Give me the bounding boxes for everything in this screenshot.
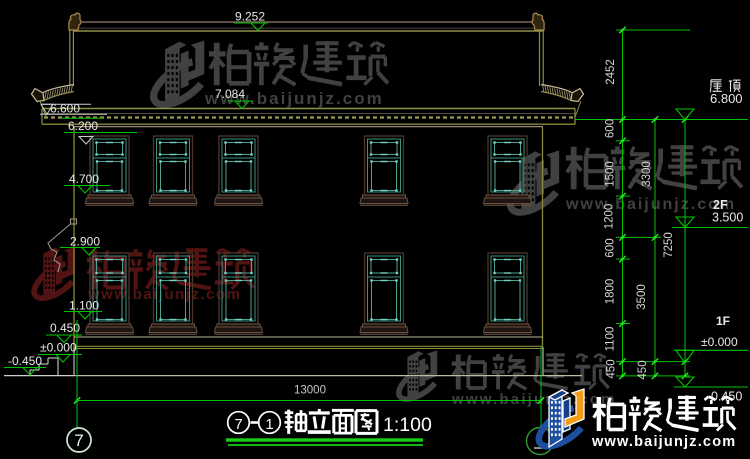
svg-text:2452: 2452 xyxy=(605,59,617,85)
svg-text:3500: 3500 xyxy=(636,284,648,310)
svg-text:1500: 1500 xyxy=(605,161,617,187)
svg-text:600: 600 xyxy=(605,119,617,138)
svg-text:6.800: 6.800 xyxy=(710,91,743,106)
svg-text:7250: 7250 xyxy=(663,232,675,258)
svg-text:13000: 13000 xyxy=(294,385,326,397)
svg-text:6.600: 6.600 xyxy=(50,102,80,116)
svg-text:1.100: 1.100 xyxy=(69,299,99,313)
svg-text:3300: 3300 xyxy=(641,161,653,187)
svg-text:6.200: 6.200 xyxy=(68,119,98,133)
svg-text:4.700: 4.700 xyxy=(69,172,99,186)
svg-text:www.baijunjz.com: www.baijunjz.com xyxy=(87,286,241,303)
svg-text:7: 7 xyxy=(234,416,242,433)
svg-text:www.baijunjz.com: www.baijunjz.com xyxy=(591,434,736,450)
svg-text:www.baijunjz.com: www.baijunjz.com xyxy=(451,391,617,408)
svg-text:7.084: 7.084 xyxy=(215,87,245,101)
svg-text:www.baijunjz.com: www.baijunjz.com xyxy=(565,196,736,213)
svg-text:600: 600 xyxy=(605,238,617,257)
svg-text:1: 1 xyxy=(265,416,273,433)
svg-text:±0.000: ±0.000 xyxy=(701,335,738,349)
svg-text:7: 7 xyxy=(74,431,83,450)
svg-text:450: 450 xyxy=(637,360,649,379)
svg-text:-0.450: -0.450 xyxy=(8,354,42,368)
svg-text:1F: 1F xyxy=(716,314,730,328)
svg-text:3.500: 3.500 xyxy=(712,211,743,225)
svg-text:0.450: 0.450 xyxy=(50,321,80,335)
svg-text:1:100: 1:100 xyxy=(383,414,432,436)
svg-text:1100: 1100 xyxy=(605,327,617,352)
svg-text:2.900: 2.900 xyxy=(70,235,100,249)
svg-text:9.252: 9.252 xyxy=(235,10,265,24)
svg-text:450: 450 xyxy=(606,359,618,378)
svg-text:±0.000: ±0.000 xyxy=(40,341,77,355)
svg-text:1200: 1200 xyxy=(604,204,616,230)
svg-text:1800: 1800 xyxy=(605,279,617,305)
